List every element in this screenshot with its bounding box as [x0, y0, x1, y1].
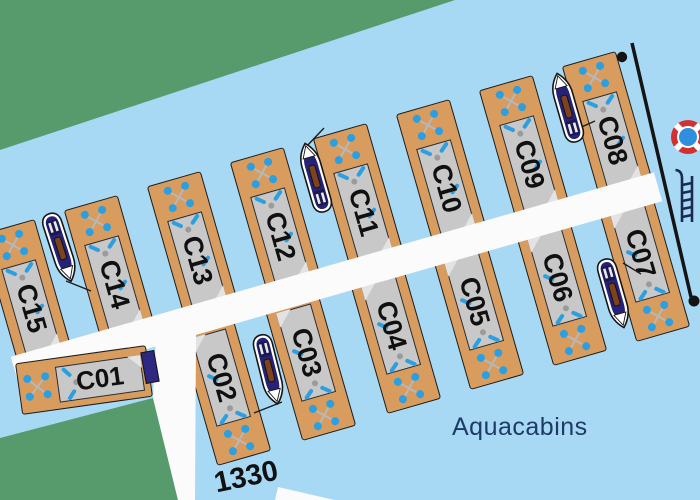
- berth-label: C10: [424, 160, 467, 216]
- life-ring-icon: [671, 120, 700, 154]
- berth-label: C08: [590, 112, 633, 168]
- cleat-mark: [522, 117, 532, 129]
- cleat-mark: [586, 100, 598, 108]
- dock-head-pattern: [307, 398, 342, 433]
- cleat-mark: [356, 165, 366, 177]
- corner-fold: [127, 355, 142, 370]
- head-dot: [481, 370, 491, 380]
- head-dot: [578, 66, 588, 76]
- head-dot: [583, 83, 593, 93]
- head-dot: [334, 155, 344, 165]
- dock-head-pattern: [245, 156, 280, 191]
- head-dot: [500, 107, 510, 117]
- head-dot: [559, 329, 569, 339]
- cleat-mark: [555, 313, 565, 325]
- bollard-dot: [268, 202, 275, 209]
- head-dot: [43, 390, 52, 399]
- berth-slip: C01: [55, 355, 145, 403]
- marina-map: C15 C14 C13 C12 C11 C10 C09 C08 C02 C03 …: [0, 0, 700, 500]
- bollard-dot: [311, 380, 318, 387]
- head-dot: [228, 446, 238, 456]
- bollard-dot: [562, 305, 569, 312]
- cleat-mark: [420, 148, 432, 156]
- head-dot: [398, 394, 408, 404]
- cleat-mark: [88, 244, 100, 252]
- berth-label: C12: [258, 208, 301, 264]
- cleat-mark: [488, 334, 500, 342]
- head-dot: [268, 174, 278, 184]
- cleat-mark: [190, 213, 200, 225]
- head-dot: [581, 341, 591, 351]
- head-dot: [223, 429, 233, 439]
- bollard-dot: [479, 329, 486, 336]
- dock-head-pattern: [22, 371, 54, 403]
- berth-label: C07: [618, 225, 661, 281]
- head-dot: [251, 179, 261, 189]
- head-dot: [517, 102, 527, 112]
- cleat-mark: [254, 196, 266, 204]
- cleat-mark: [67, 388, 76, 400]
- head-dot: [313, 421, 323, 431]
- area-label: Aquacabins: [452, 413, 588, 442]
- head-dot: [476, 353, 486, 363]
- head-dot: [417, 131, 427, 141]
- berth-slip: C14: [84, 235, 144, 333]
- head-dot: [412, 114, 422, 124]
- berth-slip: C08: [582, 91, 642, 189]
- berth-slip: C13: [167, 211, 227, 309]
- berth-label: C14: [92, 256, 135, 312]
- head-dot: [80, 210, 90, 220]
- cleat-mark: [439, 141, 449, 153]
- cleat-mark: [107, 237, 117, 249]
- bollard-dot: [517, 130, 524, 137]
- head-dot: [330, 416, 340, 426]
- corner-fold: [276, 309, 295, 328]
- mooring-post-dot: [689, 296, 700, 307]
- dock-head-pattern: [577, 60, 612, 95]
- bollard-dot: [645, 281, 652, 288]
- head-dot: [185, 198, 195, 208]
- dock-head-pattern: [162, 180, 197, 215]
- head-dot: [2, 251, 12, 261]
- cleat-mark: [320, 385, 332, 393]
- cleat-mark: [273, 189, 283, 201]
- cleat-mark: [235, 410, 247, 418]
- head-dot: [393, 377, 403, 387]
- cleat-mark: [472, 337, 482, 349]
- cleat-mark: [389, 361, 399, 373]
- cleat-mark: [337, 172, 349, 180]
- dock-head-pattern: [475, 347, 510, 382]
- berth-label: C05: [452, 273, 495, 329]
- ladder-icon: [676, 170, 693, 222]
- dock-head-pattern: [494, 84, 529, 119]
- bollard-dot: [185, 226, 192, 233]
- cleat-mark: [571, 310, 583, 318]
- bollard-dot: [102, 250, 109, 257]
- bollard-dot: [351, 178, 358, 185]
- head-dot: [308, 404, 318, 414]
- head-dot: [25, 392, 34, 401]
- head-dot: [85, 227, 95, 237]
- berth-slip: C02: [191, 328, 251, 426]
- berth-label: C06: [535, 249, 578, 305]
- shoreline-land-top: [0, 0, 455, 150]
- cleat-mark: [638, 289, 648, 301]
- head-dot: [600, 78, 610, 88]
- cleat-mark: [503, 124, 515, 132]
- berth-slip: C12: [250, 187, 310, 285]
- berth-slip: C15: [1, 259, 61, 357]
- cleat-mark: [304, 388, 314, 400]
- dock-head-pattern: [411, 108, 446, 143]
- cleat-mark: [654, 286, 666, 294]
- bollard-dot: [396, 353, 403, 360]
- head-dot: [498, 365, 508, 375]
- berth-slip: C11: [333, 163, 393, 261]
- head-dot: [564, 346, 574, 356]
- head-dot: [647, 322, 657, 332]
- cleat-mark: [405, 358, 417, 366]
- berth-slip: C09: [499, 115, 559, 213]
- head-dot: [434, 126, 444, 136]
- berth-label: C04: [369, 297, 412, 353]
- berth-label: C11: [342, 185, 385, 240]
- dock-head-pattern: [558, 323, 593, 358]
- bollard-dot: [226, 405, 233, 412]
- head-dot: [246, 162, 256, 172]
- head-dot: [19, 246, 29, 256]
- cleat-mark: [5, 268, 17, 276]
- berth-slip: C06: [527, 228, 587, 326]
- berth-label: C03: [284, 324, 327, 380]
- berth-slip: C04: [361, 276, 421, 374]
- cleat-mark: [24, 261, 34, 273]
- head-dot: [664, 317, 674, 327]
- dock-head-pattern: [0, 228, 30, 263]
- head-dot: [329, 138, 339, 148]
- bollard-dot: [600, 106, 607, 113]
- dock-head-pattern: [79, 204, 114, 239]
- head-dot: [41, 372, 50, 381]
- dock-head-pattern: [222, 423, 257, 458]
- berth-label: C02: [199, 349, 242, 405]
- head-dot: [642, 305, 652, 315]
- dock-head-pattern: [392, 371, 427, 406]
- head-dot: [351, 150, 361, 160]
- berth-label: C09: [507, 136, 550, 192]
- head-dot: [415, 389, 425, 399]
- head-dot: [163, 186, 173, 196]
- bollard-dot: [434, 154, 441, 161]
- bottom-walkway: [272, 487, 395, 500]
- cleat-mark: [171, 220, 183, 228]
- berth-label: C01: [74, 360, 126, 397]
- dock-head-pattern: [641, 299, 676, 334]
- head-dot: [245, 441, 255, 451]
- head-dot: [495, 90, 505, 100]
- berth-label: C15: [9, 280, 52, 336]
- berth-label: C13: [175, 232, 218, 288]
- berth-slip: C05: [444, 252, 504, 350]
- cleat-mark: [605, 93, 615, 105]
- head-dot: [168, 203, 178, 213]
- berth-slip: C10: [416, 139, 476, 237]
- dock-head-pattern: [328, 132, 363, 167]
- head-dot: [102, 222, 112, 232]
- bollard-dot: [19, 274, 26, 281]
- cleat-mark: [219, 413, 229, 425]
- cleat-mark: [61, 367, 72, 378]
